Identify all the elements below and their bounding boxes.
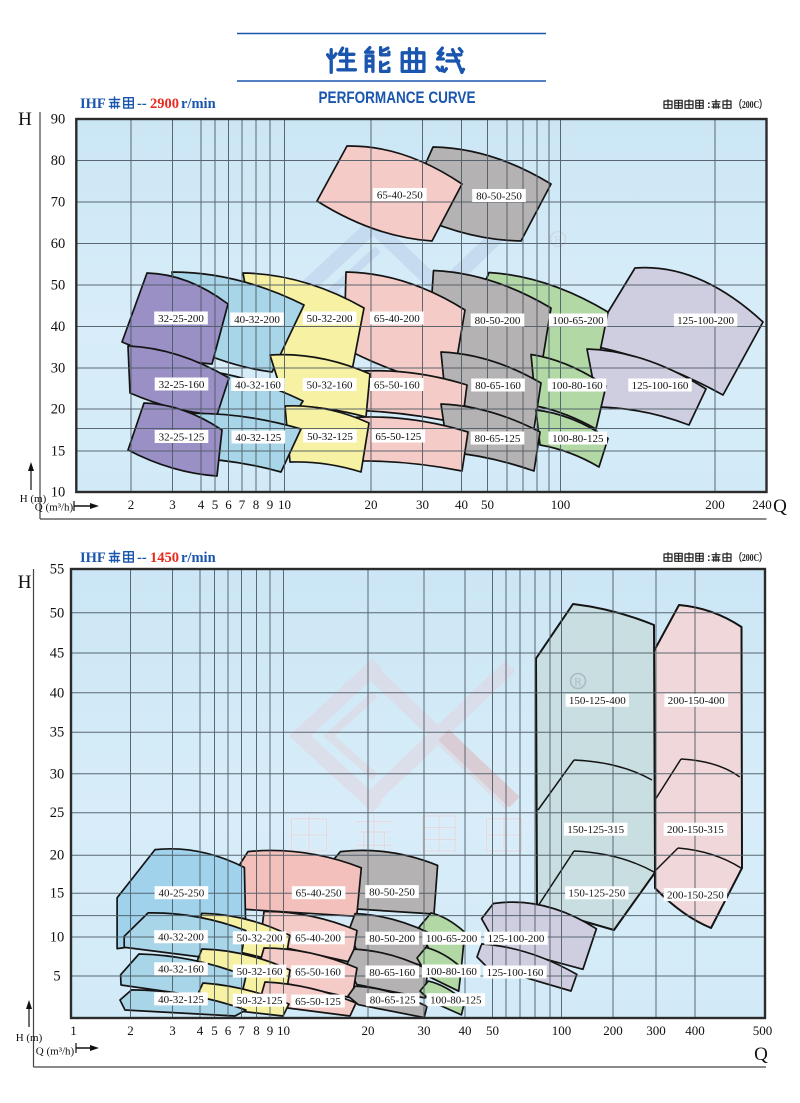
svg-text:3: 3 (169, 1023, 176, 1038)
svg-text:40-25-250: 40-25-250 (158, 888, 204, 900)
svg-text:2: 2 (128, 497, 135, 512)
svg-text:10: 10 (277, 1023, 290, 1038)
svg-text:H: H (18, 109, 32, 130)
svg-text:40-32-200: 40-32-200 (158, 932, 204, 944)
svg-text:35: 35 (50, 725, 65, 741)
svg-text:（200C）: （200C） (734, 98, 767, 111)
svg-text:8: 8 (253, 497, 260, 512)
svg-text:200-150-315: 200-150-315 (667, 824, 724, 836)
svg-text:r/min: r/min (181, 96, 216, 112)
svg-text:32-25-200: 32-25-200 (158, 313, 204, 325)
svg-text:100: 100 (551, 497, 571, 512)
svg-text:125-100-160: 125-100-160 (632, 380, 689, 392)
svg-text:40: 40 (50, 685, 65, 701)
svg-text:Q: Q (773, 496, 787, 517)
svg-text:IHF: IHF (80, 96, 106, 112)
svg-text:8: 8 (253, 1023, 260, 1038)
svg-text:80-65-125: 80-65-125 (370, 995, 416, 1007)
svg-text:100: 100 (552, 1023, 572, 1038)
svg-text:30: 30 (51, 361, 66, 377)
svg-text:5: 5 (211, 1023, 218, 1038)
svg-text:40-32-160: 40-32-160 (158, 964, 204, 976)
svg-text::: : (707, 552, 711, 564)
svg-text:1450: 1450 (150, 550, 179, 566)
svg-text:25: 25 (50, 805, 65, 821)
svg-text:30: 30 (418, 1023, 431, 1038)
svg-text:H: H (18, 572, 32, 593)
svg-text:100-80-160: 100-80-160 (551, 380, 603, 392)
svg-text:45: 45 (50, 646, 65, 662)
svg-text:r/min: r/min (181, 550, 216, 566)
svg-text:40-32-200: 40-32-200 (234, 314, 280, 326)
svg-text:15: 15 (51, 444, 66, 460)
svg-text:100-65-200: 100-65-200 (426, 933, 478, 945)
svg-text:32-25-125: 32-25-125 (159, 431, 205, 443)
svg-text:30: 30 (416, 497, 429, 512)
svg-text:50-32-125: 50-32-125 (237, 995, 283, 1007)
svg-text:3: 3 (169, 497, 176, 512)
svg-text:20: 20 (362, 1023, 375, 1038)
svg-text:6: 6 (225, 497, 232, 512)
svg-text:IHF: IHF (80, 550, 106, 566)
svg-text:30: 30 (50, 766, 65, 782)
svg-text:65-50-125: 65-50-125 (375, 431, 421, 443)
svg-text:Q (m³/h): Q (m³/h) (36, 1046, 75, 1058)
svg-text:40-32-160: 40-32-160 (235, 379, 281, 391)
svg-text:65-40-250: 65-40-250 (377, 189, 423, 201)
svg-text:2: 2 (127, 1023, 134, 1038)
svg-text:80-50-200: 80-50-200 (475, 315, 521, 327)
svg-text:80-50-250: 80-50-250 (476, 190, 522, 202)
svg-text:PERFORMANCE CURVE: PERFORMANCE CURVE (319, 89, 476, 107)
svg-text:H (m): H (m) (16, 1032, 43, 1044)
svg-text:100-65-200: 100-65-200 (552, 315, 604, 327)
svg-text:50: 50 (486, 1023, 499, 1038)
svg-text:80-65-125: 80-65-125 (475, 433, 521, 445)
svg-text:32-25-160: 32-25-160 (159, 379, 205, 391)
svg-text:R: R (574, 675, 582, 689)
svg-text:20: 20 (365, 497, 378, 512)
svg-text:50-32-200: 50-32-200 (307, 313, 353, 325)
svg-text:65-40-200: 65-40-200 (374, 313, 420, 325)
svg-text:9: 9 (267, 497, 274, 512)
svg-text:10: 10 (51, 485, 66, 501)
svg-text:50-32-125: 50-32-125 (307, 431, 353, 443)
svg-text:40-32-125: 40-32-125 (235, 432, 281, 444)
svg-text:200-150-400: 200-150-400 (668, 695, 725, 707)
svg-text:40-32-125: 40-32-125 (158, 994, 204, 1006)
svg-text:10: 10 (50, 930, 65, 946)
svg-text:50-32-160: 50-32-160 (307, 379, 353, 391)
svg-text:65-40-250: 65-40-250 (296, 888, 342, 900)
svg-text:55: 55 (50, 562, 65, 578)
svg-text:Q (m³/h): Q (m³/h) (35, 502, 74, 514)
svg-text:60: 60 (51, 236, 66, 252)
svg-text:10: 10 (278, 497, 291, 512)
svg-text:4: 4 (197, 1023, 204, 1038)
svg-text:400: 400 (685, 1023, 705, 1038)
svg-text:5: 5 (212, 497, 219, 512)
svg-text:65-40-200: 65-40-200 (295, 933, 341, 945)
svg-text:100-80-125: 100-80-125 (430, 995, 482, 1007)
svg-text:2900: 2900 (150, 96, 179, 112)
svg-text:5: 5 (53, 969, 60, 985)
svg-text:150-125-400: 150-125-400 (569, 695, 626, 707)
svg-text:80-65-160: 80-65-160 (369, 967, 415, 979)
svg-text:65-50-160: 65-50-160 (295, 967, 341, 979)
svg-text:80-65-160: 80-65-160 (475, 380, 521, 392)
svg-text:40: 40 (459, 1023, 472, 1038)
svg-text:150-125-315: 150-125-315 (567, 824, 624, 836)
svg-text:125-100-160: 125-100-160 (487, 967, 544, 979)
svg-text:1: 1 (70, 1023, 77, 1038)
svg-text:50: 50 (481, 497, 494, 512)
svg-text:50: 50 (50, 605, 65, 621)
svg-text:90: 90 (51, 112, 66, 128)
svg-text:7: 7 (238, 1023, 245, 1038)
svg-text:100-80-160: 100-80-160 (426, 966, 478, 978)
svg-text:240: 240 (752, 497, 772, 512)
svg-text:Q: Q (754, 1044, 768, 1065)
svg-text:65-50-160: 65-50-160 (374, 379, 420, 391)
svg-text:125-100-200: 125-100-200 (677, 315, 734, 327)
svg-text:200-150-250: 200-150-250 (667, 890, 724, 902)
svg-text:40: 40 (51, 319, 66, 335)
svg-text:20: 20 (51, 402, 66, 418)
svg-text:300: 300 (646, 1023, 666, 1038)
svg-text:125-100-200: 125-100-200 (488, 933, 545, 945)
svg-text:50-32-200: 50-32-200 (237, 933, 283, 945)
svg-text:80-50-200: 80-50-200 (369, 933, 415, 945)
svg-text:100-80-125: 100-80-125 (552, 433, 604, 445)
svg-text:80-50-250: 80-50-250 (369, 887, 415, 899)
svg-text:20: 20 (50, 848, 65, 864)
svg-text:50-32-160: 50-32-160 (237, 966, 283, 978)
svg-text:500: 500 (753, 1023, 773, 1038)
svg-text::: : (707, 99, 711, 111)
svg-text:65-50-125: 65-50-125 (295, 996, 341, 1008)
svg-text:4: 4 (198, 497, 205, 512)
svg-text:50: 50 (51, 278, 66, 294)
svg-text:7: 7 (239, 497, 246, 512)
svg-text:40: 40 (455, 497, 468, 512)
svg-text:70: 70 (51, 195, 66, 211)
svg-text:15: 15 (50, 886, 65, 902)
svg-text:（200C）: （200C） (734, 551, 767, 564)
svg-text:9: 9 (267, 1023, 274, 1038)
svg-text:6: 6 (225, 1023, 232, 1038)
svg-text:150-125-250: 150-125-250 (568, 888, 625, 900)
svg-text:200: 200 (603, 1023, 623, 1038)
svg-text:--: -- (137, 550, 147, 566)
svg-text:--: -- (137, 96, 147, 112)
svg-text:80: 80 (51, 153, 66, 169)
svg-text:200: 200 (705, 497, 725, 512)
